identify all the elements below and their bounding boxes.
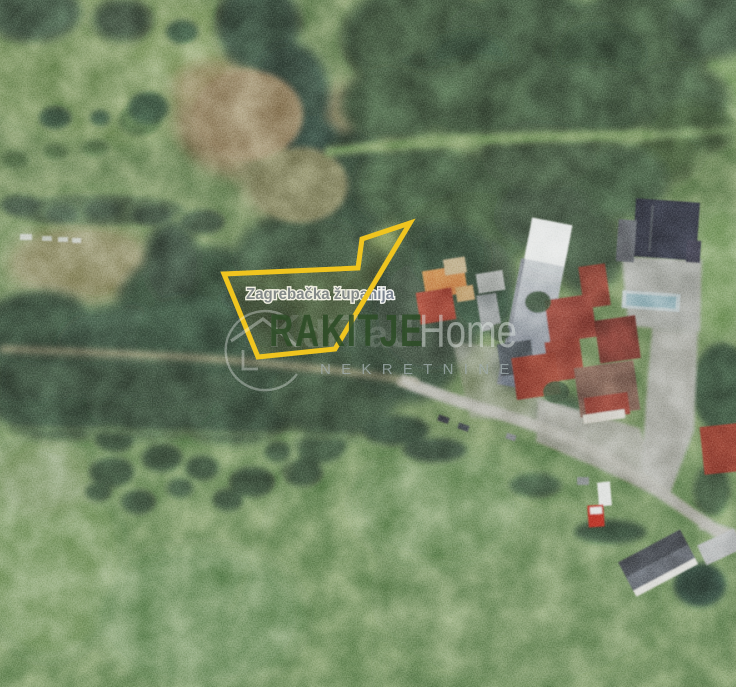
svg-text:Home: Home <box>419 305 517 357</box>
svg-text:NEKRETNINE: NEKRETNINE <box>320 361 520 378</box>
svg-text:RAKITJE: RAKITJE <box>269 306 424 356</box>
